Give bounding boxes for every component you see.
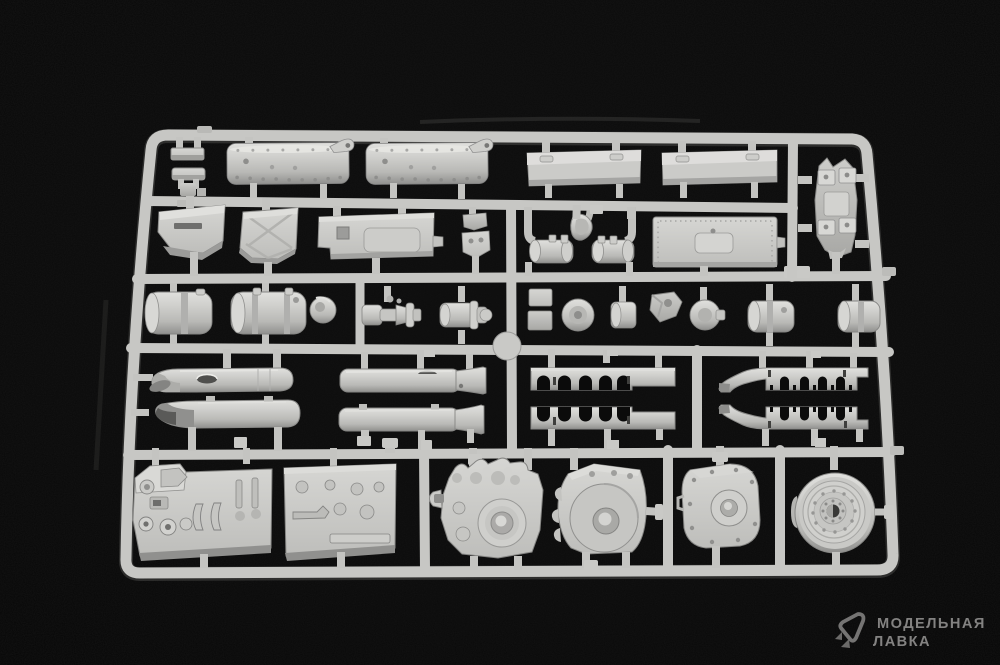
svg-text:ЛАВКА: ЛАВКА (873, 634, 931, 650)
svg-text:МОДЕЛЬНАЯ: МОДЕЛЬНАЯ (877, 616, 986, 632)
